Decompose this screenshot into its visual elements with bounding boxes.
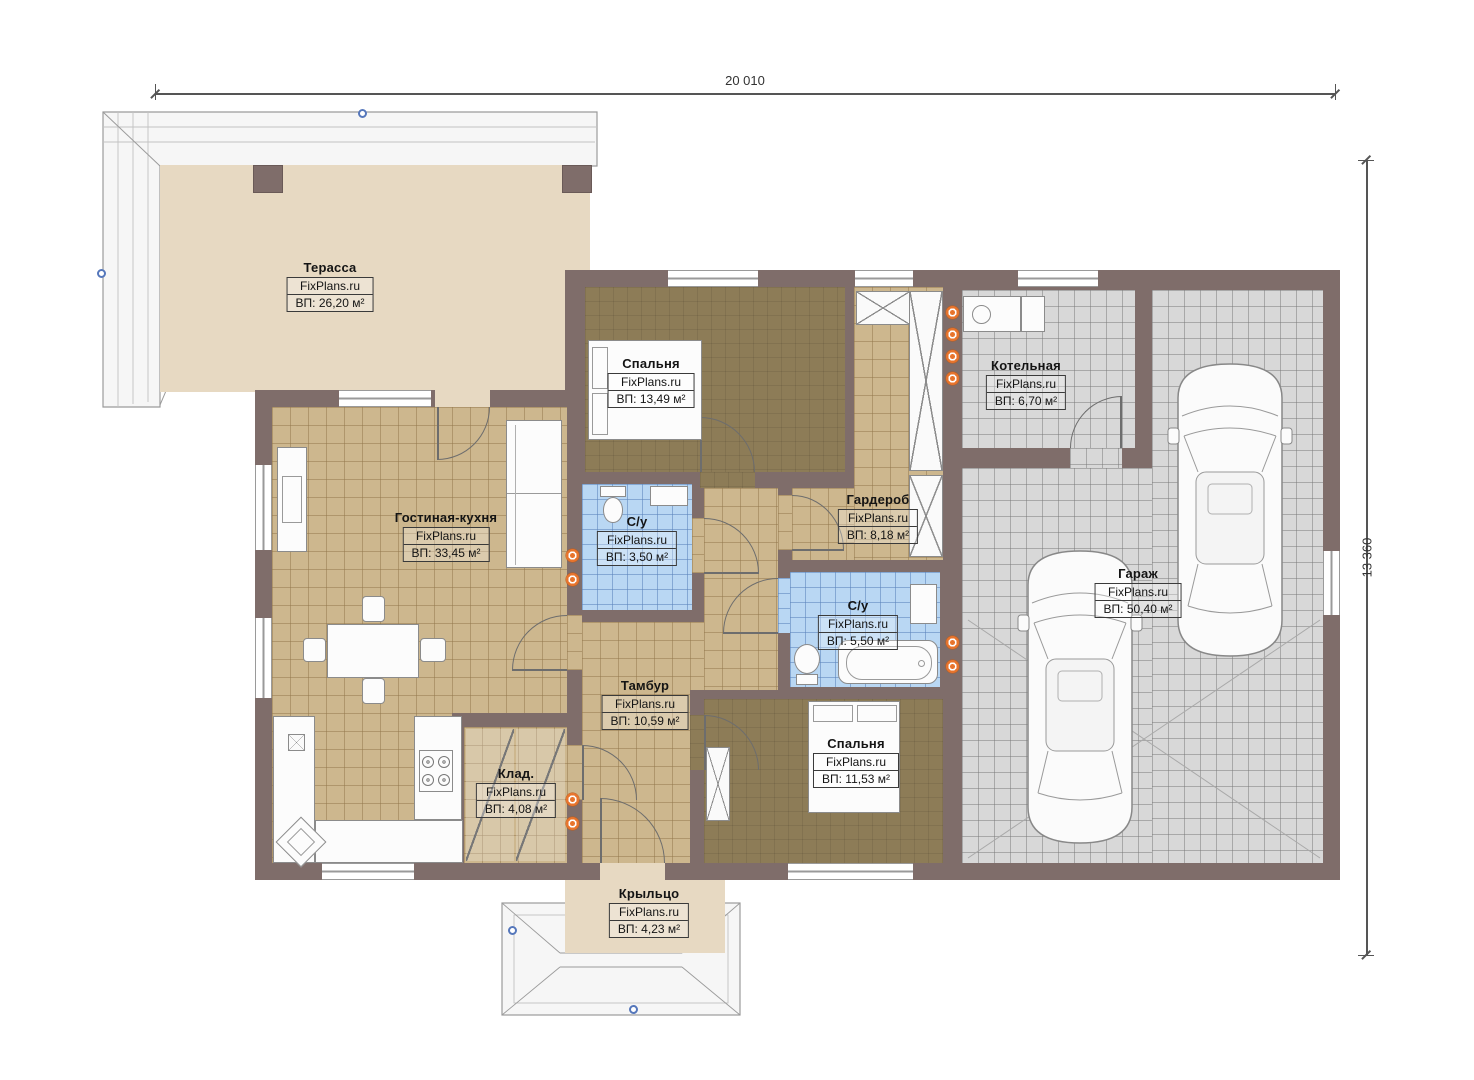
stove — [419, 750, 453, 792]
kitchen-sink-basin — [287, 828, 315, 856]
room-area: ВП: 3,50 м² — [598, 549, 676, 565]
floor-vestibule-passage — [690, 622, 704, 690]
room-info-box: FixPlans.ru ВП: 6,70 м² — [986, 375, 1066, 410]
brand-text: FixPlans.ru — [609, 374, 694, 391]
room-area: ВП: 10,59 м² — [603, 713, 688, 729]
closet-wardrobe-right-1 — [909, 291, 943, 471]
door-opening-terrace — [435, 390, 490, 407]
room-info-box: FixPlans.ru ВП: 4,23 м² — [609, 903, 689, 938]
sofa-back-line — [515, 425, 516, 565]
door-opening-storage — [567, 745, 582, 800]
room-label-porch: Крыльцо FixPlans.ru ВП: 4,23 м² — [609, 886, 689, 938]
brand-text: FixPlans.ru — [987, 376, 1065, 393]
room-label-terrace: Терасса FixPlans.ru ВП: 26,20 м² — [287, 260, 374, 312]
brand-text: FixPlans.ru — [598, 532, 676, 549]
room-info-box: FixPlans.ru ВП: 13,49 м² — [608, 373, 695, 408]
radiator-dot — [566, 793, 579, 806]
terrace-column-right — [562, 165, 592, 193]
room-label-garage: Гараж FixPlans.ru ВП: 50,40 м² — [1095, 566, 1182, 618]
brand-text: FixPlans.ru — [288, 278, 373, 295]
dimension-label-right: 13 360 — [1360, 518, 1375, 598]
toilet-tank-small-bath — [600, 486, 626, 497]
dimension-label-top: 20 010 — [700, 73, 790, 88]
brand-text: FixPlans.ru — [603, 696, 688, 713]
washbasin-small-bath — [650, 486, 688, 506]
radiator-dot — [566, 549, 579, 562]
door-opening-entrance — [600, 863, 665, 880]
room-label-bathroom-small: С/у FixPlans.ru ВП: 3,50 м² — [597, 514, 677, 566]
window-living-left-2 — [255, 618, 272, 698]
chair-bottom — [362, 678, 385, 704]
room-title: Тамбур — [602, 678, 689, 693]
room-area: ВП: 26,20 м² — [288, 295, 373, 311]
room-title: Спальня — [608, 356, 695, 371]
pillow — [813, 705, 853, 722]
room-info-box: FixPlans.ru ВП: 11,53 м² — [813, 753, 899, 788]
brand-text: FixPlans.ru — [1096, 584, 1181, 601]
brand-text: FixPlans.ru — [404, 528, 489, 545]
window-living-terrace — [339, 390, 431, 407]
room-label-living-kitchen: Гостиная-кухня FixPlans.ru ВП: 33,45 м² — [395, 510, 497, 562]
door-opening-bedroom-bottom — [690, 715, 704, 770]
door-opening-bathroom-small — [692, 518, 704, 573]
window-boiler — [1018, 270, 1098, 287]
room-title: С/у — [597, 514, 677, 529]
door-opening-boiler — [1070, 448, 1122, 468]
brand-text: FixPlans.ru — [610, 904, 688, 921]
room-area: ВП: 50,40 м² — [1096, 601, 1181, 617]
room-label-storage: Клад. FixPlans.ru ВП: 4,08 м² — [476, 766, 556, 818]
room-label-boiler: Котельная FixPlans.ru ВП: 6,70 м² — [986, 358, 1066, 410]
room-title: Крыльцо — [609, 886, 689, 901]
radiator-dot — [946, 328, 959, 341]
brand-text: FixPlans.ru — [477, 784, 555, 801]
room-info-box: FixPlans.ru ВП: 5,50 м² — [818, 615, 898, 650]
kitchen-counter-bottom — [315, 820, 463, 863]
brand-text: FixPlans.ru — [819, 616, 897, 633]
door-leaf-living — [512, 669, 567, 671]
radiator-dot — [946, 306, 959, 319]
radiator-dot — [946, 350, 959, 363]
terrace-roof-hip-line — [103, 112, 160, 166]
room-area: ВП: 33,45 м² — [404, 545, 489, 561]
roof-marker-dot — [97, 269, 106, 278]
room-info-box: FixPlans.ru ВП: 8,18 м² — [838, 509, 918, 544]
chair-top — [362, 596, 385, 622]
door-opening-bedroom-top — [700, 472, 755, 488]
roof-marker-dot — [508, 926, 517, 935]
radiator-dot — [566, 817, 579, 830]
radiator-dot — [946, 372, 959, 385]
radiator-dot — [946, 636, 959, 649]
room-label-wardrobe: Гардероб FixPlans.ru ВП: 8,18 м² — [838, 492, 918, 544]
terrace-column-left — [253, 165, 283, 193]
window-garage-right — [1323, 551, 1340, 615]
room-area: ВП: 4,08 м² — [477, 801, 555, 817]
room-label-vestibule: Тамбур FixPlans.ru ВП: 10,59 м² — [602, 678, 689, 730]
room-area: ВП: 6,70 м² — [987, 393, 1065, 409]
brand-text: FixPlans.ru — [814, 754, 898, 771]
floor-garage-left — [962, 468, 1152, 863]
room-title: С/у — [818, 598, 898, 613]
toilet-tank-big-bath — [796, 674, 818, 685]
dimension-line-top — [155, 93, 1335, 95]
room-title: Клад. — [476, 766, 556, 781]
room-title: Котельная — [986, 358, 1066, 373]
room-label-bedroom-bottom: Спальня FixPlans.ru ВП: 11,53 м² — [813, 736, 899, 788]
pillow — [592, 393, 608, 435]
room-label-bedroom-top: Спальня FixPlans.ru ВП: 13,49 м² — [608, 356, 695, 408]
boiler-unit — [1021, 296, 1045, 332]
room-title: Гараж — [1095, 566, 1182, 581]
toilet-bowl-big-bath — [794, 644, 820, 674]
door-leaf-terrace — [437, 407, 439, 460]
door-opening-wardrobe — [778, 495, 792, 550]
kitchen-hob-marker — [288, 734, 305, 751]
door-opening-bathroom-big — [778, 578, 790, 633]
sofa — [506, 420, 562, 568]
pillow — [857, 705, 897, 722]
boiler-counter — [963, 296, 1021, 332]
window-living-left-1 — [255, 465, 272, 550]
door-leaf-entrance — [600, 798, 602, 863]
roof-marker-dot — [629, 1005, 638, 1014]
pillow — [592, 347, 608, 389]
room-area: ВП: 8,18 м² — [839, 527, 917, 543]
room-area: ВП: 13,49 м² — [609, 391, 694, 407]
room-title: Спальня — [813, 736, 899, 751]
room-info-box: FixPlans.ru ВП: 50,40 м² — [1095, 583, 1182, 618]
bathtub-drain — [918, 660, 925, 667]
room-title: Терасса — [287, 260, 374, 275]
roof-marker-dot — [358, 109, 367, 118]
storage-partition-top — [452, 713, 582, 727]
door-leaf-bathroom-big — [723, 632, 778, 634]
door-leaf-storage — [582, 745, 584, 800]
door-leaf-wardrobe — [792, 549, 844, 551]
door-leaf-boiler — [1120, 396, 1122, 448]
floor-terrace — [160, 165, 590, 392]
radiator-dot — [566, 573, 579, 586]
room-info-box: FixPlans.ru ВП: 10,59 м² — [602, 695, 689, 730]
closet-wardrobe-top — [856, 291, 910, 325]
room-area: ВП: 11,53 м² — [814, 771, 898, 787]
window-bedroom-top — [668, 270, 758, 287]
room-label-bathroom-big: С/у FixPlans.ru ВП: 5,50 м² — [818, 598, 898, 650]
window-kitchen-bottom — [322, 863, 414, 880]
dining-table — [327, 624, 419, 678]
door-leaf-bathroom-small — [704, 572, 759, 574]
washbasin-big-bath — [910, 584, 937, 624]
brand-text: FixPlans.ru — [839, 510, 917, 527]
floor-plan-canvas: 20 010 13 360 Терасса FixPlans.ru ВП: 26… — [0, 0, 1474, 1080]
room-info-box: FixPlans.ru ВП: 4,08 м² — [476, 783, 556, 818]
door-opening-living — [567, 615, 582, 670]
window-bedroom-bottom — [788, 863, 913, 880]
cabinet-inner-line — [282, 476, 302, 523]
room-title: Гостиная-кухня — [395, 510, 497, 525]
room-info-box: FixPlans.ru ВП: 33,45 м² — [403, 527, 490, 562]
chair-left — [303, 638, 326, 662]
room-info-box: FixPlans.ru ВП: 26,20 м² — [287, 277, 374, 312]
boiler-sink — [972, 305, 991, 324]
room-title: Гардероб — [838, 492, 918, 507]
chair-right — [420, 638, 446, 662]
closet-bedroom-bottom — [706, 747, 730, 821]
room-info-box: FixPlans.ru ВП: 3,50 м² — [597, 531, 677, 566]
room-area: ВП: 5,50 м² — [819, 633, 897, 649]
radiator-dot — [946, 660, 959, 673]
window-wardrobe — [855, 270, 913, 287]
room-area: ВП: 4,23 м² — [610, 921, 688, 937]
cabinet — [277, 447, 307, 552]
